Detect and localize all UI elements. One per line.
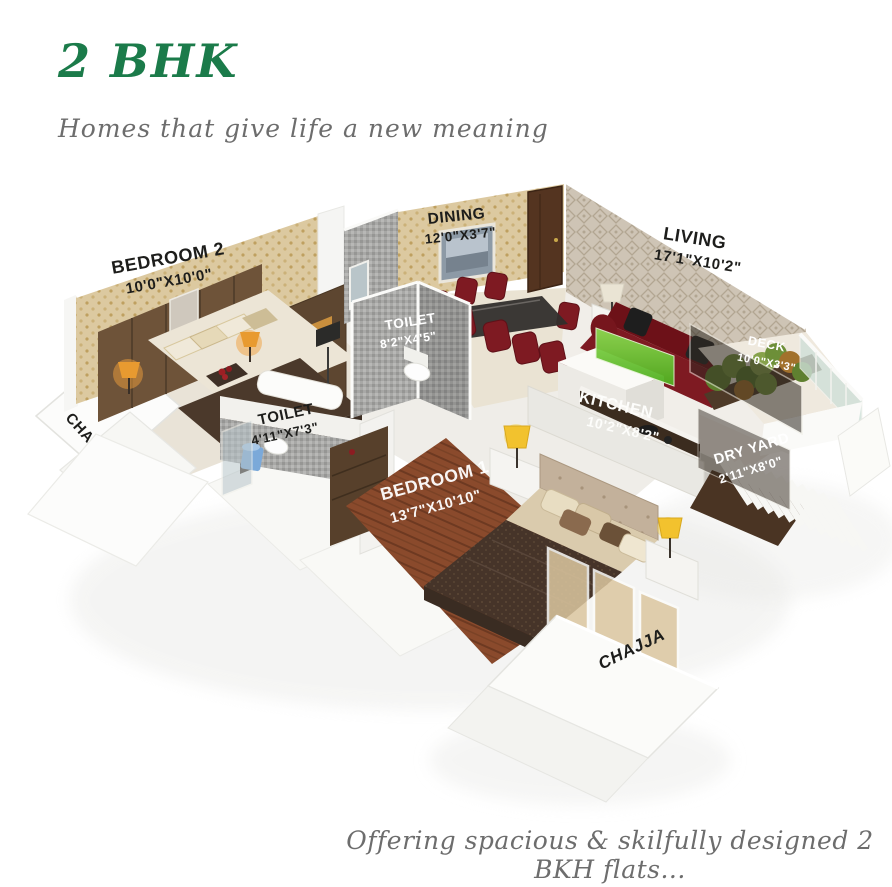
footer-caption: Offering spacious & skilfully designed 2… xyxy=(330,826,890,884)
entry-door xyxy=(528,186,562,292)
page: 2 BHK Homes that give life a new meaning xyxy=(0,0,892,887)
toilet-common: TOILET 8'2"X4'5" xyxy=(352,282,470,420)
floorplan-render: CHAJJA xyxy=(0,0,892,887)
